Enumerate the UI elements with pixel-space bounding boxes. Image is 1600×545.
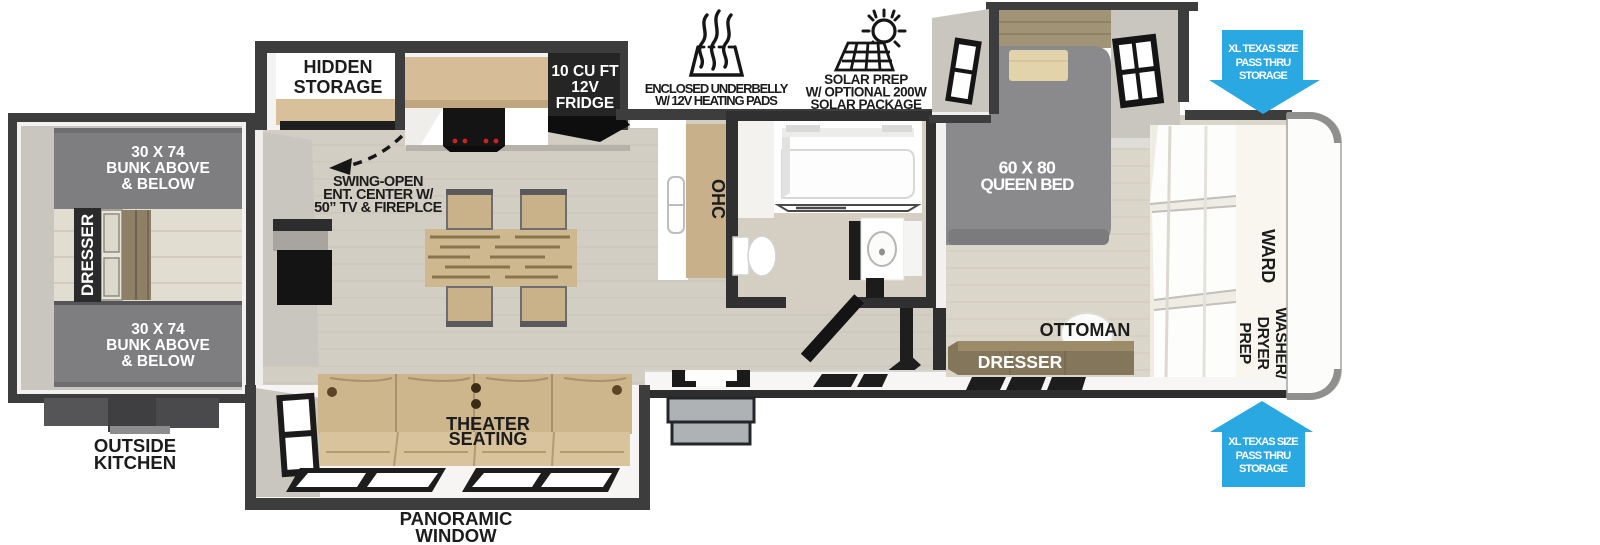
- svg-text:WINDOW: WINDOW: [415, 525, 497, 545]
- svg-text:STORAGE: STORAGE: [294, 77, 383, 97]
- svg-text:HIDDEN: HIDDEN: [303, 57, 372, 77]
- svg-text:50” TV & FIREPLCE: 50” TV & FIREPLCE: [314, 200, 442, 216]
- svg-text:BUNK ABOVE: BUNK ABOVE: [106, 160, 210, 177]
- svg-text:XL TEXAS SIZE: XL TEXAS SIZE: [1228, 43, 1298, 55]
- svg-text:DRESSER: DRESSER: [78, 214, 97, 296]
- svg-text:FRIDGE: FRIDGE: [556, 95, 615, 112]
- svg-text:BUNK ABOVE: BUNK ABOVE: [106, 337, 210, 354]
- svg-text:W/ 12V HEATING PADS: W/ 12V HEATING PADS: [655, 93, 778, 108]
- svg-text:30 X 74: 30 X 74: [131, 144, 185, 161]
- svg-text:STORAGE: STORAGE: [1239, 70, 1287, 82]
- svg-text:& BELOW: & BELOW: [121, 353, 195, 370]
- svg-text:DRYER: DRYER: [1254, 317, 1271, 371]
- svg-text:KITCHEN: KITCHEN: [94, 452, 176, 473]
- svg-text:STORAGE: STORAGE: [1239, 463, 1287, 475]
- svg-text:10 CU FT: 10 CU FT: [551, 63, 619, 80]
- svg-text:PASS THRU: PASS THRU: [1236, 57, 1292, 69]
- svg-text:12V: 12V: [571, 79, 599, 96]
- svg-text:PASS THRU: PASS THRU: [1236, 450, 1292, 462]
- svg-text:SEATING: SEATING: [449, 429, 528, 449]
- svg-text:QUEEN BED: QUEEN BED: [981, 175, 1075, 194]
- svg-text:& BELOW: & BELOW: [121, 176, 195, 193]
- svg-text:XL TEXAS SIZE: XL TEXAS SIZE: [1228, 436, 1298, 448]
- svg-text:OHC: OHC: [708, 179, 728, 219]
- svg-text:OTTOMAN: OTTOMAN: [1040, 320, 1131, 340]
- svg-text:WARD: WARD: [1258, 229, 1278, 283]
- svg-text:PREP: PREP: [1236, 322, 1253, 364]
- svg-text:DRESSER: DRESSER: [978, 352, 1063, 372]
- svg-text:30 X 74: 30 X 74: [131, 321, 185, 338]
